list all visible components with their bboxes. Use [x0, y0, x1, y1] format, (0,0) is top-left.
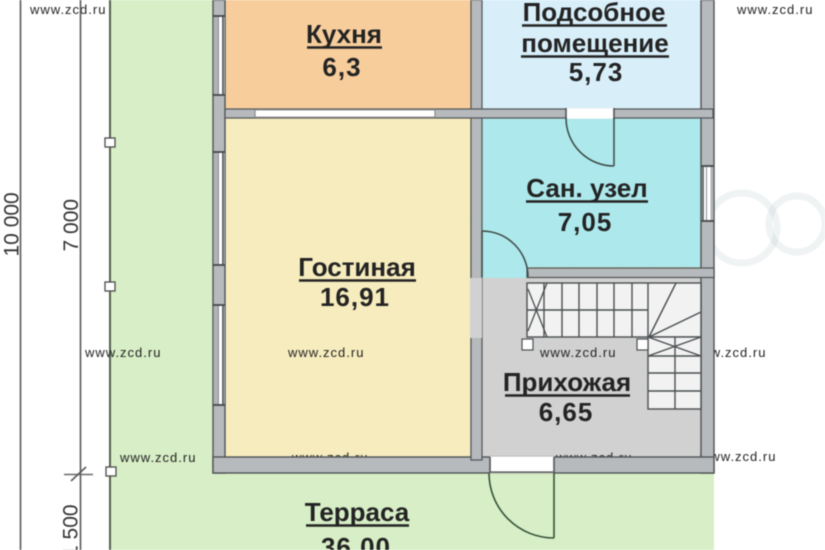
svg-text:6,3: 6,3 [322, 52, 361, 82]
svg-text:Прихожая: Прихожая [503, 367, 631, 397]
svg-text:www.zcd.ru: www.zcd.ru [119, 450, 196, 465]
svg-text:Кухня: Кухня [306, 19, 382, 49]
svg-text:www.zcd.ru: www.zcd.ru [84, 345, 161, 360]
svg-text:Терраса: Терраса [305, 497, 410, 527]
svg-text:Сан. узел: Сан. узел [526, 173, 647, 203]
svg-text:5,73: 5,73 [569, 57, 624, 87]
svg-text:1 500: 1 500 [60, 504, 83, 550]
svg-text:www.zcd.ru: www.zcd.ru [29, 2, 106, 17]
svg-text:www.zcd.ru: www.zcd.ru [736, 2, 813, 17]
svg-text:36,00: 36,00 [321, 532, 391, 550]
svg-text:Гостиная: Гостиная [298, 252, 416, 282]
svg-text:7 000: 7 000 [60, 199, 83, 252]
svg-text:www.zcd.ru: www.zcd.ru [287, 345, 364, 360]
svg-text:6,65: 6,65 [539, 397, 594, 427]
svg-text:7,05: 7,05 [558, 207, 613, 237]
svg-text:16,91: 16,91 [320, 282, 390, 312]
svg-text:Подсобное: Подсобное [523, 0, 666, 27]
svg-text:помещение: помещение [521, 28, 668, 58]
svg-text:10 000: 10 000 [1, 192, 24, 256]
svg-text:www.zcd.ru: www.zcd.ru [539, 345, 616, 360]
